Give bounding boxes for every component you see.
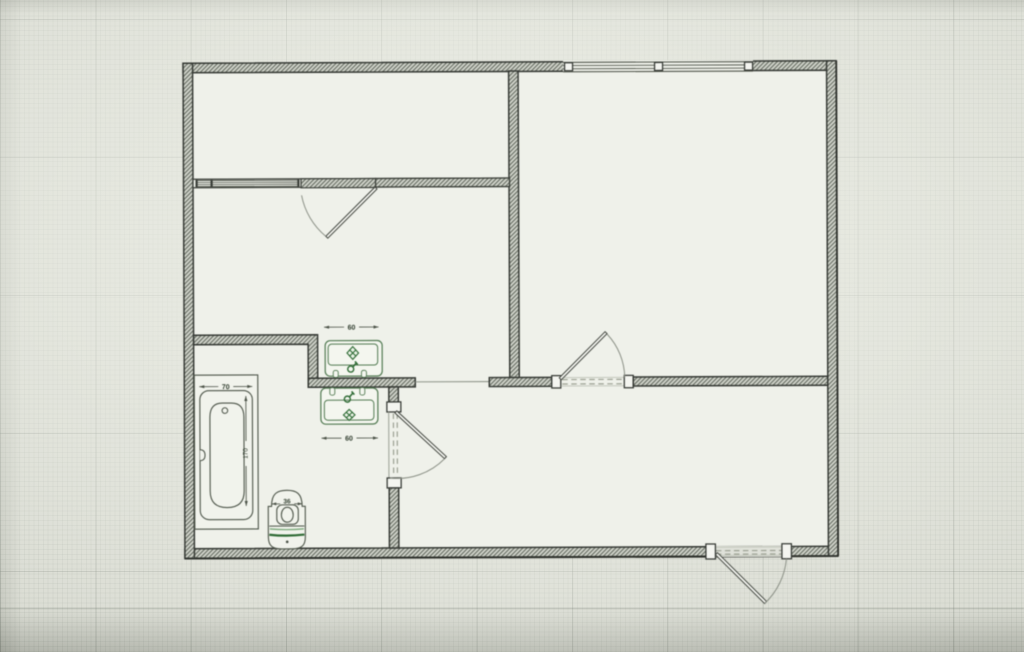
svg-text:70: 70 <box>222 384 230 391</box>
svg-text:36: 36 <box>283 498 291 505</box>
svg-text:60: 60 <box>348 325 356 332</box>
svg-text:170: 170 <box>243 448 250 459</box>
svg-text:60: 60 <box>345 436 353 443</box>
